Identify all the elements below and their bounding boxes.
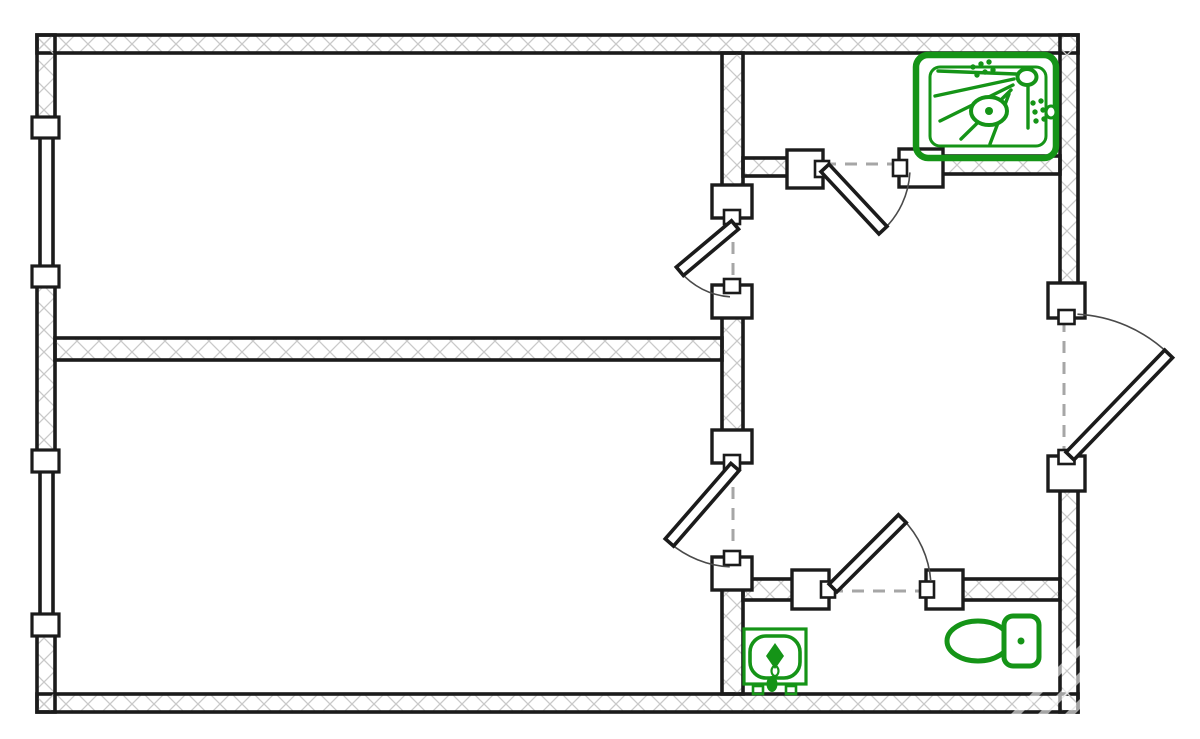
shower-icon [916,55,1056,158]
door-jamb-4 [712,551,752,590]
door-entrance-leaf [1066,350,1173,460]
window-1 [35,137,59,268]
floor-plan-page [0,0,1200,739]
wall-bathroom-wall-right [960,579,1060,600]
wall-divider-vertical-middle [722,316,743,432]
door-room-2-leaf [665,463,739,546]
door-room-1-leaf [676,221,738,276]
door-jamb-2 [712,279,752,318]
sink-icon [744,629,806,694]
door-jamb-9 [1048,283,1085,324]
wall-divider-vertical-upper [722,53,743,187]
wall-room-divider-horizontal [55,338,722,360]
door-jamb-7 [792,570,835,609]
wall-outer-top [37,35,1078,53]
wall-outer-left-middle [37,285,55,452]
window-jamb-3 [32,450,59,472]
wall-outer-left-upper [37,35,55,120]
door-entrance-swing-arc [1077,314,1168,354]
wall-outer-bottom [37,694,1078,712]
window-2 [35,471,59,616]
wall-divider-vertical-lower [722,588,743,694]
door-entrance [1066,314,1173,460]
door-bathroom-leaf [829,515,906,592]
floor-plan [0,0,1200,739]
door-jamb-1 [712,185,752,224]
door-bathroom [829,515,931,592]
wall-shower-room-wall-left [743,158,789,176]
door-shower-room-leaf [821,164,887,234]
door-jamb-8 [920,570,963,609]
window-jamb-1 [32,117,59,138]
toilet-icon [947,616,1039,666]
window-jamb-2 [32,266,59,287]
wall-outer-right-upper [1060,35,1078,285]
wall-outer-left-lower [37,635,55,712]
window-jamb-4 [32,614,59,636]
